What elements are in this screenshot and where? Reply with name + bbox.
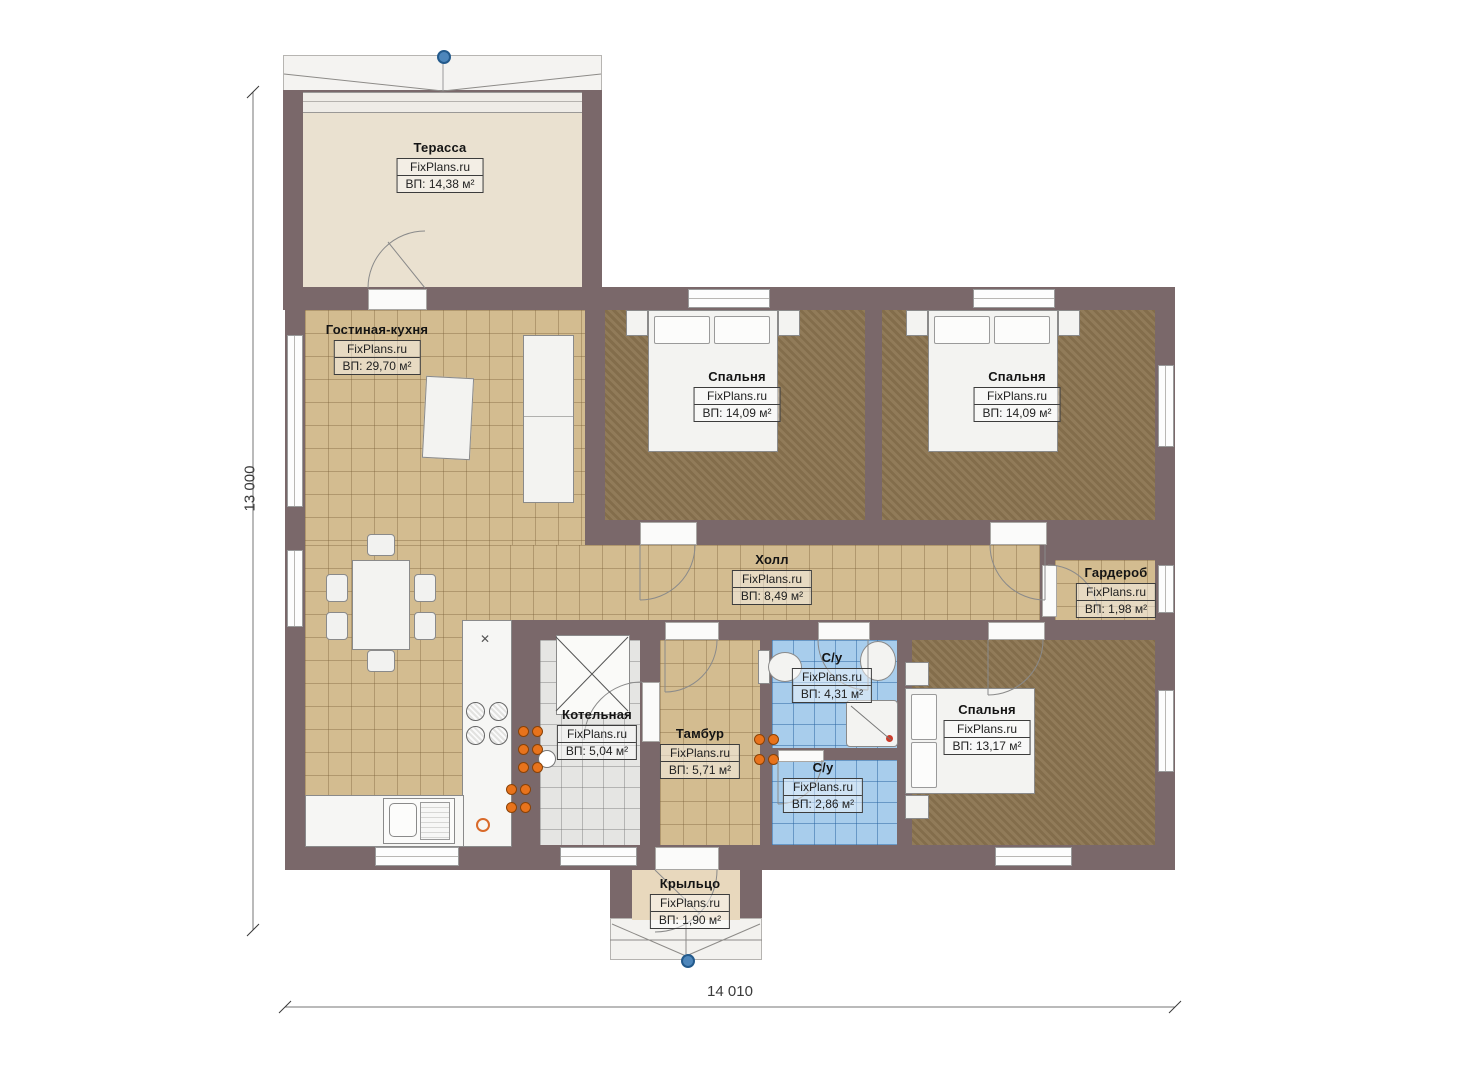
chair: [367, 534, 395, 556]
watermark-box: FixPlans.ru ВП: 14,38 м²: [397, 158, 484, 193]
watermark-brand: FixPlans.ru: [695, 388, 780, 405]
wardrobe-door: [1042, 565, 1057, 617]
chair: [326, 574, 348, 602]
bedroom-1-door: [640, 522, 697, 545]
room-name: Гардероб: [1076, 565, 1156, 580]
dimension-left: 13 000: [242, 444, 259, 534]
window: [973, 289, 1055, 308]
room-area: ВП: 5,04 м²: [558, 743, 636, 759]
floor-plan-page: ✕: [0, 0, 1474, 1080]
room-name: Холл: [732, 552, 812, 567]
room-area: ВП: 14,38 м²: [398, 176, 483, 192]
room-label-bedroom-3: Спальня FixPlans.ru ВП: 13,17 м²: [944, 702, 1031, 755]
chair: [367, 650, 395, 672]
room-area: ВП: 13,17 м²: [945, 738, 1030, 754]
window: [688, 289, 770, 308]
bedroom-2-door: [990, 522, 1047, 545]
watermark-box: FixPlans.ru ВП: 5,04 м²: [557, 725, 637, 760]
entrance-door: [655, 847, 719, 870]
bathroom-1-door: [818, 622, 870, 640]
room-label-porch: Крыльцо FixPlans.ru ВП: 1,90 м²: [650, 876, 730, 929]
room-name: С/у: [783, 760, 863, 775]
bedroom-3-door: [988, 622, 1045, 640]
room-area: ВП: 14,09 м²: [975, 405, 1060, 421]
window: [287, 335, 303, 507]
room-label-wardrobe: Гардероб FixPlans.ru ВП: 1,98 м²: [1076, 565, 1156, 618]
sink-bowl: [389, 803, 417, 837]
window: [1158, 565, 1174, 613]
room-area: ВП: 1,90 м²: [651, 912, 729, 928]
chair: [326, 612, 348, 640]
roof-marker: [437, 50, 451, 64]
radiator-icon: [518, 744, 543, 755]
watermark-brand: FixPlans.ru: [945, 721, 1030, 738]
window: [995, 847, 1072, 866]
room-label-bedroom-2: Спальня FixPlans.ru ВП: 14,09 м²: [974, 369, 1061, 422]
pillow: [714, 316, 770, 344]
room-name: Спальня: [694, 369, 781, 384]
window: [1158, 690, 1174, 772]
stove-burner-icon: [489, 702, 508, 721]
room-label-vestibule: Тамбур FixPlans.ru ВП: 5,71 м²: [660, 726, 740, 779]
sofa: [523, 335, 574, 503]
stove-burner-icon: [466, 702, 485, 721]
watermark-brand: FixPlans.ru: [793, 669, 871, 686]
room-label-hall: Холл FixPlans.ru ВП: 8,49 м²: [732, 552, 812, 605]
room-area: ВП: 8,49 м²: [733, 588, 811, 604]
room-label-bedroom-1: Спальня FixPlans.ru ВП: 14,09 м²: [694, 369, 781, 422]
pillow: [911, 742, 937, 788]
watermark-box: FixPlans.ru ВП: 14,09 м²: [974, 387, 1061, 422]
chair: [414, 574, 436, 602]
vent-icon: ✕: [480, 632, 490, 646]
pillow: [911, 694, 937, 740]
shower-drain-marker: [886, 735, 893, 742]
room-area: ВП: 4,31 м²: [793, 686, 871, 702]
chair: [414, 612, 436, 640]
room-name: Крыльцо: [650, 876, 730, 891]
room-label-bathroom-1: С/у FixPlans.ru ВП: 4,31 м²: [792, 650, 872, 703]
room-name: Тамбур: [660, 726, 740, 741]
nightstand: [626, 310, 648, 336]
room-name: Гостиная-кухня: [326, 322, 428, 337]
watermark-brand: FixPlans.ru: [975, 388, 1060, 405]
nightstand: [906, 310, 928, 336]
watermark-box: FixPlans.ru ВП: 5,71 м²: [660, 744, 740, 779]
radiator-icon: [754, 734, 779, 745]
watermark-brand: FixPlans.ru: [661, 745, 739, 762]
window: [560, 847, 637, 866]
pillow: [654, 316, 710, 344]
stove-burner-icon: [489, 726, 508, 745]
vestibule-door: [665, 622, 719, 640]
watermark-box: FixPlans.ru ВП: 1,98 м²: [1076, 583, 1156, 618]
room-name: Котельная: [557, 707, 637, 722]
sink-drainer: [420, 802, 450, 840]
room-label-terrace: Терасса FixPlans.ru ВП: 14,38 м²: [397, 140, 484, 193]
dimension-bottom: 14 010: [680, 983, 780, 1000]
boiler-unit: [556, 635, 630, 715]
watermark-box: FixPlans.ru ВП: 2,86 м²: [783, 778, 863, 813]
boiler-room-door: [642, 682, 660, 742]
room-area: ВП: 29,70 м²: [335, 358, 420, 374]
watermark-box: FixPlans.ru ВП: 29,70 м²: [334, 340, 421, 375]
window: [1158, 365, 1174, 447]
room-name: Терасса: [397, 140, 484, 155]
coffee-table: [422, 376, 474, 460]
watermark-brand: FixPlans.ru: [398, 159, 483, 176]
watermark-brand: FixPlans.ru: [1077, 584, 1155, 601]
radiator-icon: [518, 762, 543, 773]
watermark-box: FixPlans.ru ВП: 13,17 м²: [944, 720, 1031, 755]
window: [287, 550, 303, 627]
room-name: С/у: [792, 650, 872, 665]
dining-table: [352, 560, 410, 650]
window: [375, 847, 459, 866]
room-area: ВП: 5,71 м²: [661, 762, 739, 778]
watermark-box: FixPlans.ru ВП: 8,49 м²: [732, 570, 812, 605]
watermark-brand: FixPlans.ru: [651, 895, 729, 912]
room-label-boiler-room: Котельная FixPlans.ru ВП: 5,04 м²: [557, 707, 637, 760]
room-label-living-kitchen: Гостиная-кухня FixPlans.ru ВП: 29,70 м²: [326, 322, 428, 375]
pillow: [994, 316, 1050, 344]
room-label-bathroom-2: С/у FixPlans.ru ВП: 2,86 м²: [783, 760, 863, 813]
radiator-icon: [518, 726, 543, 737]
watermark-box: FixPlans.ru ВП: 4,31 м²: [792, 668, 872, 703]
room-area: ВП: 1,98 м²: [1077, 601, 1155, 617]
nightstand: [1058, 310, 1080, 336]
terrace-door: [368, 289, 427, 310]
pillow: [934, 316, 990, 344]
watermark-brand: FixPlans.ru: [558, 726, 636, 743]
faucet-marker: [476, 818, 490, 832]
watermark-box: FixPlans.ru ВП: 1,90 м²: [650, 894, 730, 929]
room-name: Спальня: [944, 702, 1031, 717]
porch-marker: [681, 954, 695, 968]
watermark-brand: FixPlans.ru: [335, 341, 420, 358]
radiator-icon: [506, 802, 531, 813]
nightstand: [905, 662, 929, 686]
radiator-icon: [754, 754, 779, 765]
nightstand: [905, 795, 929, 819]
terrace-railing: [303, 92, 582, 113]
watermark-brand: FixPlans.ru: [784, 779, 862, 796]
nightstand: [778, 310, 800, 336]
room-area: ВП: 2,86 м²: [784, 796, 862, 812]
room-area: ВП: 14,09 м²: [695, 405, 780, 421]
stove-burner-icon: [466, 726, 485, 745]
room-name: Спальня: [974, 369, 1061, 384]
watermark-box: FixPlans.ru ВП: 14,09 м²: [694, 387, 781, 422]
watermark-brand: FixPlans.ru: [733, 571, 811, 588]
radiator-icon: [506, 784, 531, 795]
